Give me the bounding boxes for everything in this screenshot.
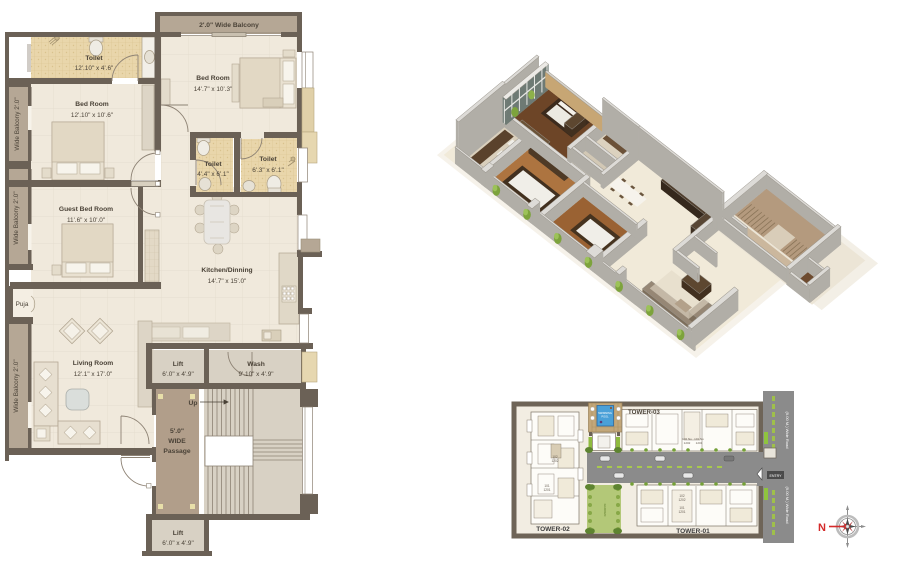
svg-text:GARDEN: GARDEN: [603, 504, 607, 517]
svg-text:SWIMMING: SWIMMING: [598, 411, 612, 415]
svg-text:6'.0" x 4'.9": 6'.0" x 4'.9": [162, 540, 194, 547]
svg-text:14'.7" x 10'.3": 14'.7" x 10'.3": [194, 86, 233, 93]
svg-text:Bed Room: Bed Room: [75, 101, 108, 108]
svg-text:TOWER-02: TOWER-02: [536, 526, 570, 533]
svg-text:1201: 1201: [696, 441, 703, 445]
svg-text:Wide Balcony 2'.0": Wide Balcony 2'.0": [13, 359, 20, 412]
svg-text:WIDE: WIDE: [168, 438, 186, 445]
svg-text:Wash: Wash: [247, 361, 265, 368]
svg-text:Toilet: Toilet: [204, 161, 222, 168]
svg-text:Up: Up: [189, 400, 198, 407]
svg-text:4'.4" x 6'.1": 4'.4" x 6'.1": [197, 171, 229, 178]
svg-text:Toilet: Toilet: [85, 55, 103, 62]
svg-text:5'.0": 5'.0": [170, 428, 184, 435]
svg-text:Bed Room: Bed Room: [196, 75, 229, 82]
svg-text:6'.0" x 4'.9": 6'.0" x 4'.9": [162, 371, 194, 378]
svg-text:14'.7" x 15'.0": 14'.7" x 15'.0": [208, 278, 247, 285]
svg-text:Passage: Passage: [163, 448, 190, 455]
svg-text:ENTRY: ENTRY: [769, 474, 782, 478]
svg-text:Toilet: Toilet: [259, 156, 277, 163]
svg-text:Wide Balcony 2'.0": Wide Balcony 2'.0": [14, 97, 21, 150]
svg-text:1202: 1202: [551, 459, 558, 463]
svg-text:12'.10" x 4'.6": 12'.10" x 4'.6": [75, 65, 114, 72]
svg-text:TOWER-01: TOWER-01: [676, 528, 710, 535]
svg-text:6'.3" x 6'.1": 6'.3" x 6'.1": [252, 167, 284, 174]
svg-text:Puja: Puja: [16, 301, 29, 308]
svg-text:Guest Bed Room: Guest Bed Room: [59, 206, 113, 213]
svg-text:POOL: POOL: [601, 415, 609, 419]
svg-text:1202: 1202: [684, 441, 691, 445]
svg-text:Kitchen/Dinning: Kitchen/Dinning: [201, 267, 252, 274]
svg-text:(9.00 M.) Wide Road: (9.00 M.) Wide Road: [785, 487, 790, 524]
svg-text:1201: 1201: [543, 488, 550, 492]
svg-text:1202: 1202: [678, 498, 685, 502]
svg-text:Living Room: Living Room: [73, 360, 114, 367]
svg-text:(9.00 M.) Wide Road: (9.00 M.) Wide Road: [785, 412, 790, 449]
svg-text:Lift: Lift: [173, 361, 184, 368]
svg-text:9'.10" x 4'.9": 9'.10" x 4'.9": [238, 371, 273, 378]
svg-text:Wide Balcony 2'.0": Wide Balcony 2'.0": [13, 191, 20, 244]
svg-text:TOWER-03: TOWER-03: [628, 409, 660, 416]
svg-text:11'.6" x 10'.0": 11'.6" x 10'.0": [67, 217, 105, 224]
svg-text:Lift: Lift: [173, 530, 184, 537]
svg-text:12'.10" x 10'.6": 12'.10" x 10'.6": [71, 112, 113, 119]
svg-text:N: N: [818, 522, 826, 534]
svg-text:1201: 1201: [678, 510, 685, 514]
svg-text:12'.1" x 17'.0": 12'.1" x 17'.0": [74, 371, 113, 378]
svg-text:2'.0" Wide Balcony: 2'.0" Wide Balcony: [199, 22, 259, 29]
